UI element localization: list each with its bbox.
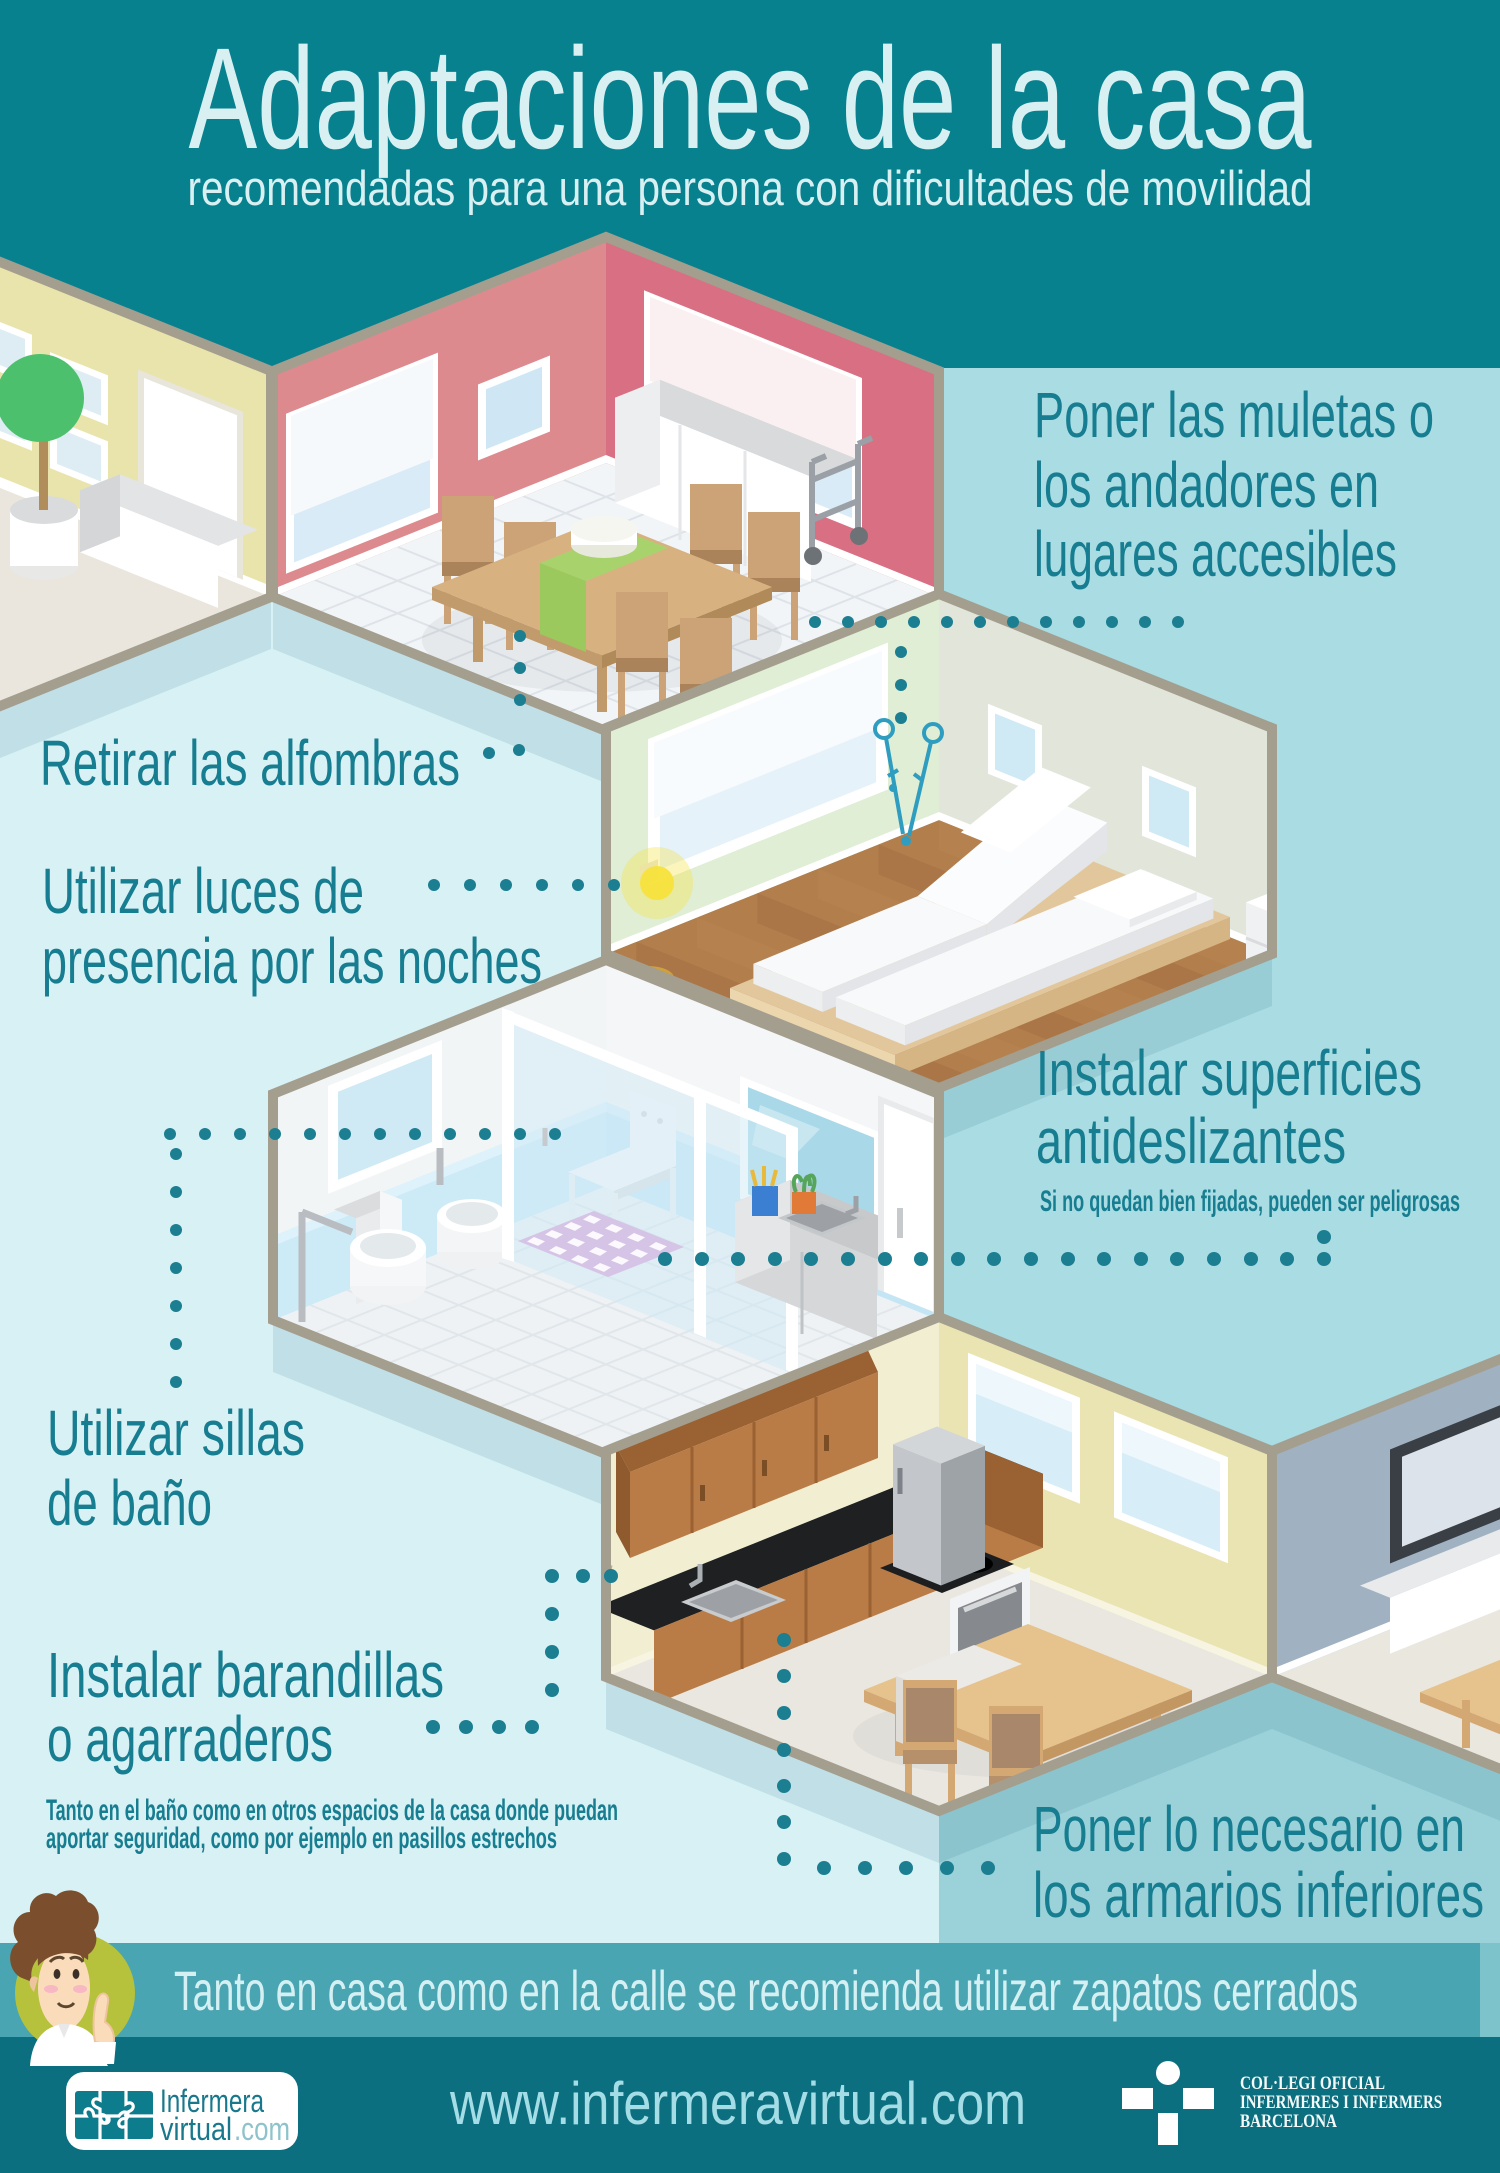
svg-text:presencia por las noches: presencia por las noches bbox=[42, 925, 542, 997]
svg-text:Utilizar luces de: Utilizar luces de bbox=[42, 855, 364, 927]
svg-text:Utilizar sillas: Utilizar sillas bbox=[47, 1397, 305, 1469]
svg-text:Poner lo necesario en: Poner lo necesario en bbox=[1033, 1793, 1465, 1865]
svg-text:Retirar las alfombras: Retirar las alfombras bbox=[40, 727, 460, 799]
svg-text:Instalar barandillas: Instalar barandillas bbox=[47, 1639, 444, 1711]
svg-text:INFERMERES I INFERMERS: INFERMERES I INFERMERS bbox=[1240, 2092, 1442, 2113]
svg-text:lugares accesibles: lugares accesibles bbox=[1034, 518, 1397, 590]
svg-text:BARCELONA: BARCELONA bbox=[1240, 2111, 1337, 2132]
svg-text:los armarios inferiores: los armarios inferiores bbox=[1033, 1859, 1484, 1931]
svg-text:Tanto en casa como en la calle: Tanto en casa como en la calle se recomi… bbox=[174, 1959, 1358, 2022]
svg-text:Si no quedan bien fijadas, pue: Si no quedan bien fijadas, pueden ser pe… bbox=[1040, 1185, 1460, 1218]
svg-text:www.infermeravirtual.com: www.infermeravirtual.com bbox=[449, 2070, 1026, 2137]
svg-text:de baño: de baño bbox=[47, 1467, 212, 1539]
svg-text:o agarraderos: o agarraderos bbox=[47, 1703, 333, 1775]
svg-text:Adaptaciones de la casa: Adaptaciones de la casa bbox=[189, 18, 1313, 179]
svg-text:antideslizantes: antideslizantes bbox=[1036, 1105, 1346, 1177]
svg-text:los andadores en: los andadores en bbox=[1034, 449, 1379, 521]
svg-text:aportar seguridad, como por ej: aportar seguridad, como por ejemplo en p… bbox=[46, 1822, 557, 1855]
svg-text:.com: .com bbox=[234, 2111, 290, 2147]
svg-text:Poner las muletas o: Poner las muletas o bbox=[1034, 379, 1434, 451]
svg-text:COL·LEGI OFICIAL: COL·LEGI OFICIAL bbox=[1240, 2073, 1385, 2094]
svg-text:virtual: virtual bbox=[160, 2111, 232, 2147]
svg-text:recomendadas para una persona: recomendadas para una persona con dificu… bbox=[188, 162, 1313, 216]
svg-text:Instalar superficies: Instalar superficies bbox=[1036, 1037, 1422, 1109]
